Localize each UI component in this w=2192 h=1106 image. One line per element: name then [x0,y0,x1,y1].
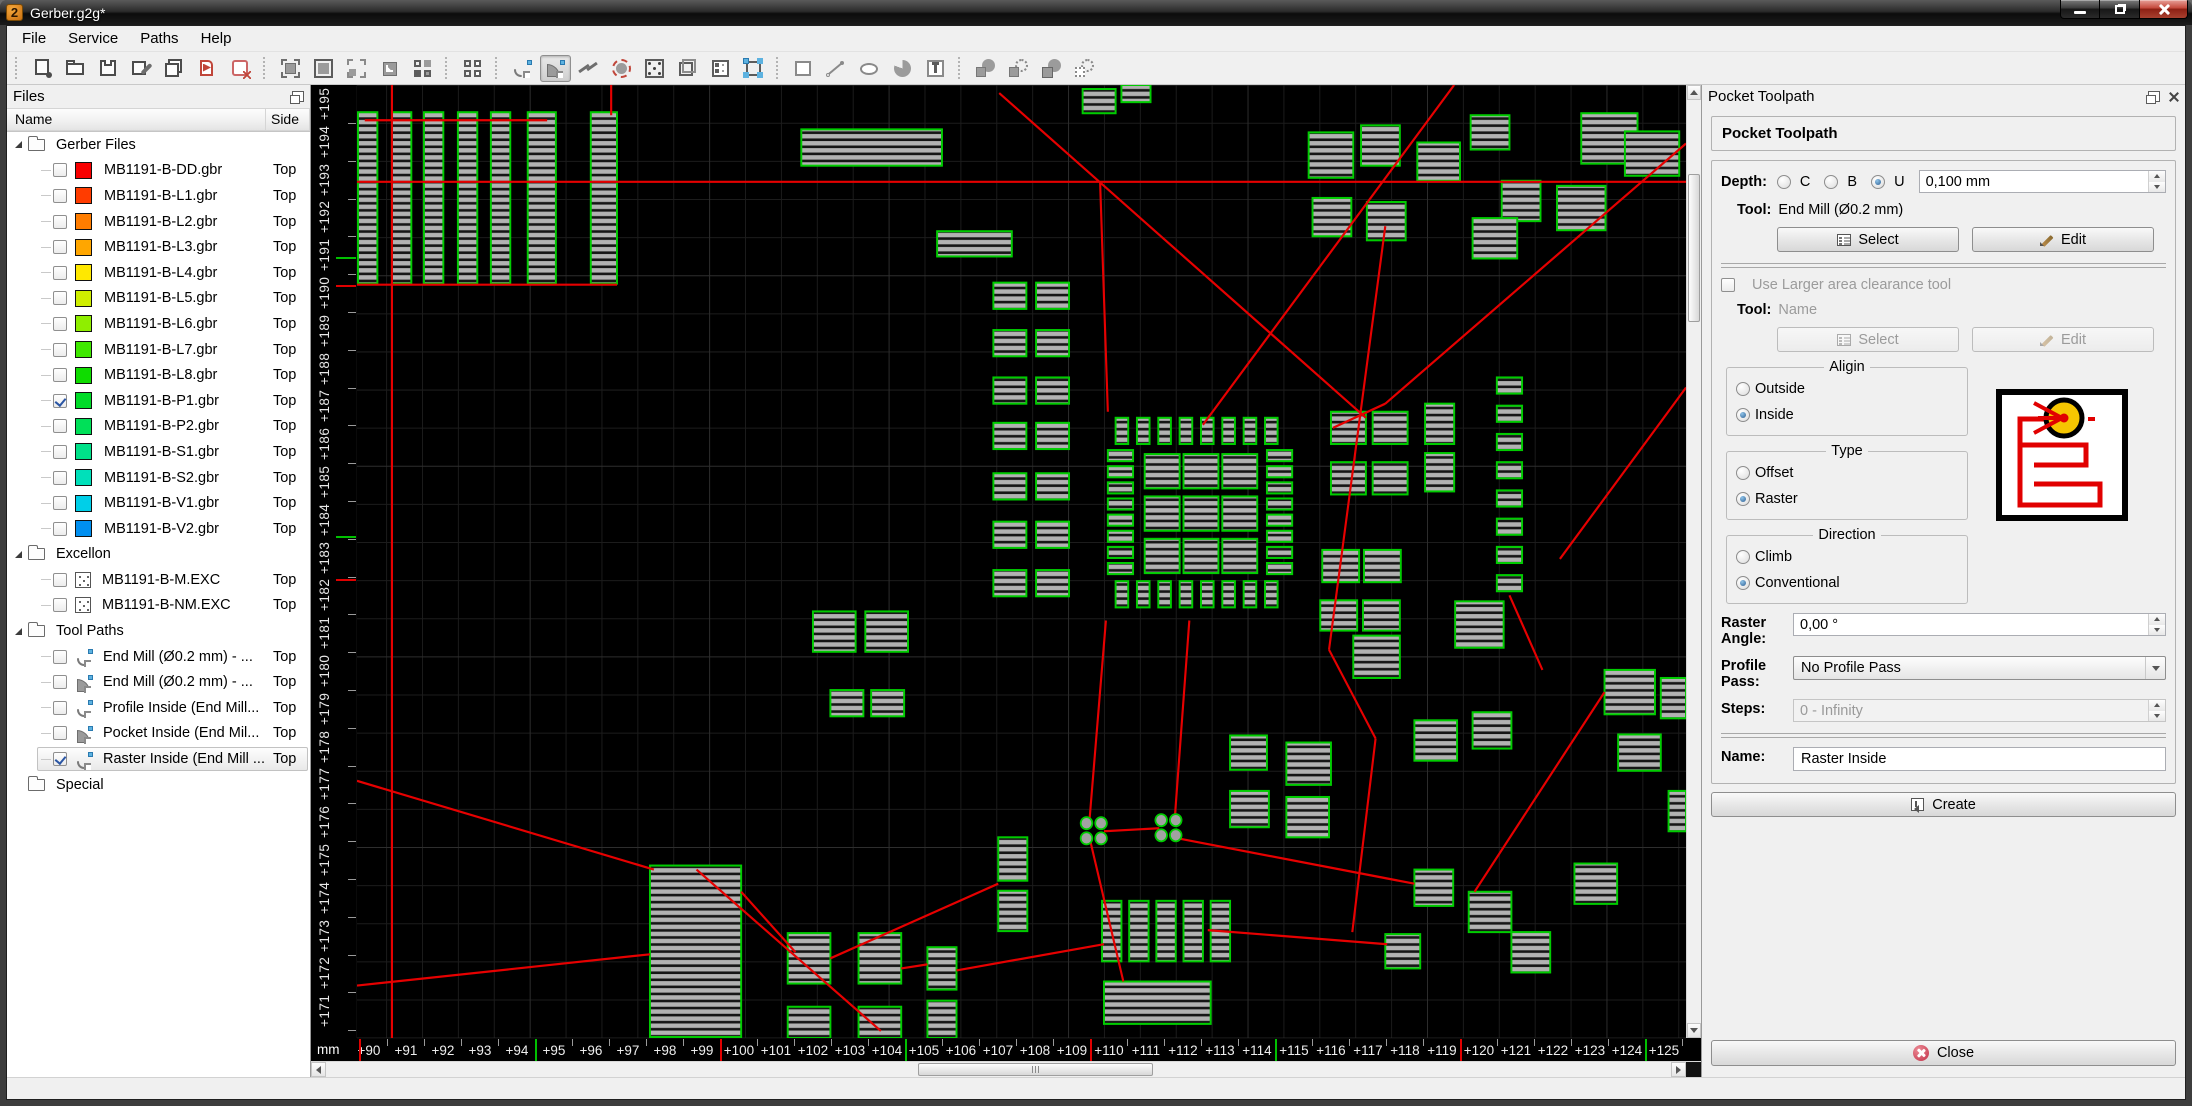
scroll-left-button[interactable] [311,1062,326,1077]
visibility-checkbox[interactable] [53,368,67,382]
layer-color-swatch[interactable] [75,290,92,307]
v-ruler-tick [348,236,356,237]
depth-radio-b[interactable] [1824,175,1838,189]
pcb-pad [1108,450,1133,461]
bool-subtract-button[interactable] [1003,55,1034,82]
expander-icon[interactable] [15,141,22,148]
pcb-pad [927,1001,956,1038]
type-raster-radio[interactable] [1736,492,1750,506]
depth-option-c[interactable]: C [1800,174,1810,190]
toolbar-grip[interactable] [776,57,783,79]
tree-file-row[interactable]: MB1191-B-V2.gbrTop [7,516,310,542]
bool-exclude-button[interactable] [1069,55,1100,82]
type-offset-radio[interactable] [1736,466,1750,480]
depth-radio-u[interactable] [1871,175,1885,189]
new-document-icon [32,58,53,79]
layer-color-swatch[interactable] [75,341,92,358]
minimize-button[interactable] [2060,0,2100,19]
tree-item-label[interactable]: MB1191-B-L1.gbr [102,186,267,206]
tree-file-row[interactable]: MB1191-B-L3.gbrTop [7,234,310,260]
pcb-pad [871,690,904,716]
tree-file-row[interactable]: MB1191-B-L8.gbrTop [7,362,310,388]
v-ruler-tick [348,539,356,540]
tree-item-label[interactable]: MB1191-B-P1.gbr [102,391,267,411]
tree-item-label[interactable]: MB1191-B-L4.gbr [102,263,267,283]
draw-line-button[interactable] [821,55,852,82]
tree-file-row[interactable]: MB1191-B-P1.gbrTop [7,388,310,414]
pocket-form: Depth: C B U 0,100 mm Tool: End Mill (Ø0… [1711,160,2176,784]
view-grid-button[interactable] [457,55,488,82]
outline-tool-button[interactable] [672,55,703,82]
restring-tool-button[interactable] [606,55,637,82]
pcb-pad [1661,678,1686,718]
horizontal-scroll-track[interactable] [326,1062,1671,1077]
pad-tool-icon [644,58,665,79]
visibility-checkbox[interactable] [53,343,67,357]
v-ruler-tick [348,199,356,200]
pcb-pad [1425,453,1454,491]
side-value: Top [267,597,310,613]
tree-file-row[interactable]: MB1191-B-DD.gbrTop [7,158,310,184]
folder-icon [28,779,45,791]
tree-file-row[interactable]: End Mill (Ø0.2 mm) - ...Top [7,644,310,670]
draw-ellipse-button[interactable] [854,55,885,82]
pcb-pad [1104,982,1211,1024]
pcb-pad [1156,901,1175,962]
tree-connector [41,503,51,504]
open-button[interactable] [60,55,91,82]
tree-file-row[interactable]: MB1191-B-L6.gbrTop [7,311,310,337]
toolbar-grip[interactable] [15,57,22,79]
tree-connector [41,221,51,222]
layer-color-swatch[interactable] [75,495,92,512]
pcb-pad [1497,490,1522,506]
v-ruler-label: +189 [317,313,335,349]
tree-folder-row[interactable]: Excellon [7,542,310,568]
layer-color-swatch[interactable] [75,213,92,230]
tree-connector [41,426,51,427]
pcb-pad [813,611,856,651]
tree-item-label[interactable]: MB1191-B-L2.gbr [102,212,267,232]
column-name[interactable]: Name [7,109,266,130]
files-panel-header: Files [7,85,310,108]
visibility-checkbox[interactable] [53,522,67,536]
layer-color-swatch[interactable] [75,392,92,409]
zoom-fit-button[interactable] [275,55,306,82]
pad-tool-button[interactable] [639,55,670,82]
edit-icon [2040,333,2054,347]
steps-spinner[interactable] [2148,700,2165,721]
direction-climb-radio[interactable] [1736,550,1750,564]
restore-icon [2115,5,2125,14]
outline-tool-icon [677,58,698,79]
scroll-down-button[interactable] [1687,1023,1701,1038]
draw-pie-button[interactable] [887,55,918,82]
close-panel-icon[interactable] [2168,91,2179,102]
separator [1721,733,2166,738]
tree-folder-label[interactable]: Excellon [54,544,310,564]
pcb-pad [392,112,411,283]
h-ruler-mark [1090,1039,1092,1061]
pcb-pad [1158,418,1171,444]
import-paths-button[interactable] [192,55,223,82]
pcb-pad [1625,131,1679,175]
tree-file-row[interactable]: MB1191-B-L1.gbrTop [7,183,310,209]
h-ruler-label: +113 [1200,1043,1240,1058]
tree-item-label[interactable]: MB1191-B-V2.gbr [102,519,267,539]
menu-paths[interactable]: Paths [129,27,189,50]
close-file-button[interactable] [225,55,256,82]
tree-connector [41,579,51,580]
visibility-checkbox[interactable] [53,573,67,587]
name-input[interactable]: Raster Inside [1793,747,2166,771]
v-ruler-label: +171 [317,993,335,1029]
visibility-checkbox[interactable] [53,445,67,459]
pcb-pad [1267,563,1292,574]
v-ruler-tick [348,652,356,653]
direction-group-title: Direction [1813,527,1880,543]
menu-file[interactable]: File [11,27,57,50]
via-pad [1081,817,1093,829]
pcb-pad [1129,901,1148,962]
title-bar[interactable]: 2 Gerber.g2g* [0,0,2192,25]
toolpath-icon [75,673,94,692]
float-panel-icon[interactable] [292,91,304,102]
save-button[interactable] [93,55,124,82]
menu-help[interactable]: Help [190,27,243,50]
edit-icon [2040,233,2054,247]
visibility-checkbox[interactable] [53,163,67,177]
restore-button[interactable] [2100,0,2140,19]
pcb-pad [1497,519,1522,535]
layer-color-swatch[interactable] [75,367,92,384]
v-ruler-tick [348,350,356,351]
clearance-select-button[interactable]: Select [1777,327,1959,352]
h-ruler-mark [905,1039,907,1061]
tree-folder-label[interactable]: Gerber Files [54,135,310,155]
pocket-panel-header: Pocket Toolpath [1702,85,2185,108]
create-button[interactable]: Create [1711,792,2176,817]
pcb-pad [1669,791,1686,831]
layer-color-swatch[interactable] [75,187,92,204]
raster-angle-field[interactable]: 0,00 ° [1793,613,2166,636]
pcb-pad [1222,539,1257,573]
tree-item-label[interactable]: MB1191-B-L5.gbr [102,288,267,308]
visibility-checkbox[interactable] [53,240,67,254]
tree-item-label[interactable]: Pocket Inside (End Mil... [101,723,267,743]
arc-tool-icon [512,58,533,79]
tree-folder-label[interactable]: Special [54,775,310,795]
tree-file-row[interactable]: MB1191-B-L2.gbrTop [7,209,310,235]
v-ruler-label: +188 [317,351,335,387]
align-group: Aligin Outside Inside [1726,359,1968,436]
tree-file-row[interactable]: MB1191-B-M.EXCTop [7,567,310,593]
menu-service[interactable]: Service [57,27,129,50]
profile-pass-dropdown[interactable]: No Profile Pass [1793,656,2166,680]
visibility-checkbox[interactable] [53,726,67,740]
tree-file-row[interactable]: MB1191-B-L4.gbrTop [7,260,310,286]
side-value: Top [267,265,310,281]
app-window: 2 Gerber.g2g* FileServicePathsHelp Files… [0,0,2192,1106]
tree-file-row[interactable]: MB1191-B-L5.gbrTop [7,286,310,312]
pcb-pad [1320,600,1357,630]
save-icon [98,58,119,79]
tree-file-row[interactable]: MB1191-B-P2.gbrTop [7,414,310,440]
tree-connector [41,707,51,708]
visibility-checkbox[interactable] [53,496,67,510]
layer-color-swatch[interactable] [75,264,92,281]
type-offset-label[interactable]: Offset [1755,465,1793,481]
depth-option-u[interactable]: U [1894,174,1904,190]
layer-color-swatch[interactable] [75,443,92,460]
tree-connector [41,375,51,376]
toolbar-grip[interactable] [958,57,965,79]
pcb-pad [1180,581,1193,607]
clearance-label[interactable]: Use Larger area clearance tool [1752,277,1951,293]
visibility-checkbox[interactable] [53,266,67,280]
v-ruler-mark [336,579,356,581]
drill-file-icon [75,572,91,588]
h-ruler-label: +122 [1533,1043,1573,1058]
type-raster-label[interactable]: Raster [1755,491,1798,507]
tree-item-label[interactable]: MB1191-B-DD.gbr [102,160,267,180]
pcb-pad [1222,581,1235,607]
depth-option-b[interactable]: B [1847,174,1857,190]
tree-folder-row[interactable]: Special [7,772,310,798]
v-ruler-tick [348,463,356,464]
visibility-checkbox[interactable] [53,752,67,766]
v-ruler-tick [348,955,356,956]
pcb-pad [1244,418,1257,444]
toolbar-grip[interactable] [445,57,452,79]
depth-value-field[interactable]: 0,100 mm [1919,170,2166,193]
horizontal-scrollbar[interactable] [311,1061,1701,1077]
pcb-pad [1618,734,1661,770]
column-side[interactable]: Side [266,109,309,130]
visibility-checkbox[interactable] [53,291,67,305]
draw-rectangle-icon [793,58,814,79]
zoom-in-selection-button[interactable] [374,55,405,82]
tree-item-label[interactable]: Profile Inside (End Mill... [101,698,267,718]
pcb-pad [1265,418,1278,444]
visibility-checkbox[interactable] [53,394,67,408]
direction-conventional-label[interactable]: Conventional [1755,575,1840,591]
tree-file-row[interactable]: MB1191-B-S1.gbrTop [7,439,310,465]
pcb-pad [1497,434,1522,450]
v-ruler-tick [348,879,356,880]
direction-conventional-radio[interactable] [1736,576,1750,590]
pcb-pad [1108,563,1133,574]
arc-filled-tool-button[interactable] [540,55,571,82]
tree-folder-label[interactable]: Tool Paths [54,621,310,641]
polyline-tool-button[interactable] [573,55,604,82]
tree-folder-row[interactable]: Tool Paths [7,618,310,644]
align-outside-radio[interactable] [1736,382,1750,396]
pcb-pad [1574,864,1617,904]
layer-color-swatch[interactable] [75,162,92,179]
pcb-pad [424,112,443,283]
direction-climb-label[interactable]: Climb [1755,549,1792,565]
new-document-button[interactable] [27,55,58,82]
pcb-pad [998,891,1027,931]
layer-color-swatch[interactable] [75,418,92,435]
tree-item-label[interactable]: MB1191-B-NM.EXC [100,595,267,615]
draw-text-button[interactable] [920,55,951,82]
layer-color-swatch[interactable] [75,239,92,256]
close-icon [2158,3,2170,15]
tool-select-button[interactable]: Select [1777,227,1959,252]
draw-rectangle-button[interactable] [788,55,819,82]
v-ruler-label: +184 [317,502,335,538]
align-inside-label[interactable]: Inside [1755,407,1794,423]
pcb-pad [1036,423,1069,449]
vertical-scroll-track[interactable] [1687,100,1701,1023]
visibility-checkbox[interactable] [53,701,67,715]
depth-spinner[interactable] [2148,171,2165,192]
tree-file-row[interactable]: End Mill (Ø0.2 mm) - ...Top [7,669,310,695]
via-pad [1170,814,1182,826]
visibility-checkbox[interactable] [53,650,67,664]
vertical-scrollbar[interactable] [1686,85,1701,1038]
pcb-pad [1036,570,1069,596]
transform-tool-button[interactable] [738,55,769,82]
scroll-right-button[interactable] [1671,1062,1686,1077]
layer-color-swatch[interactable] [75,520,92,537]
h-ruler-mark [535,1039,537,1061]
tree-item-label[interactable]: MB1191-B-S2.gbr [102,468,267,488]
h-ruler-label: +115 [1274,1043,1314,1058]
tree-file-row[interactable]: MB1191-B-L7.gbrTop [7,337,310,363]
align-outside-label[interactable]: Outside [1755,381,1805,397]
tree-connector [41,298,51,299]
clearance-edit-button[interactable]: Edit [1972,327,2154,352]
tree-file-row[interactable]: MB1191-B-NM.EXCTop [7,593,310,619]
pcb-pad [1183,901,1202,962]
pcb-pad [993,522,1026,548]
visibility-checkbox[interactable] [53,675,67,689]
tree-item-label[interactable]: MB1191-B-S1.gbr [102,442,267,462]
scrollbar-corner [1686,1062,1701,1077]
tree-connector [41,733,51,734]
via-pad [1095,817,1107,829]
close-button[interactable] [2140,0,2188,19]
h-ruler-label: +100 [719,1043,759,1058]
toolbar-grip[interactable] [495,57,502,79]
h-ruler-label: +91 [386,1043,426,1058]
visibility-checkbox[interactable] [53,215,67,229]
edit-label: Edit [2061,232,2086,248]
align-inside-radio[interactable] [1736,408,1750,422]
pcb-pad [1364,550,1401,582]
visibility-checkbox[interactable] [53,471,67,485]
name-value: Raster Inside [1801,751,1886,767]
visibility-checkbox[interactable] [53,419,67,433]
pcb-pad [1158,581,1171,607]
pcb-pad [1145,539,1180,573]
visibility-checkbox[interactable] [53,189,67,203]
pcb-pad [1473,218,1518,258]
arc-tool-button[interactable] [507,55,538,82]
tree-item-label[interactable]: MB1191-B-L3.gbr [102,237,267,257]
tree-connector [41,323,51,324]
steps-field[interactable]: 0 - Infinity [1793,699,2166,722]
tree-item-label[interactable]: Raster Inside (End Mill ... [101,749,267,769]
h-ruler-label: +102 [793,1043,833,1058]
tree-item-label[interactable]: End Mill (Ø0.2 mm) - ... [101,647,267,667]
side-value: Top [267,418,310,434]
zoom-selection-button[interactable] [308,55,339,82]
save-all-button[interactable] [159,55,190,82]
tree-connector [41,247,51,248]
clearance-checkbox[interactable] [1721,278,1735,292]
tree-item-label[interactable]: MB1191-B-M.EXC [100,570,267,590]
layer-color-swatch[interactable] [75,315,92,332]
expander-icon[interactable] [15,551,22,558]
steps-value: 0 - Infinity [1800,703,1863,719]
visibility-checkbox[interactable] [53,317,67,331]
close-toolpath-button[interactable]: Close [1711,1040,2176,1066]
tree-connector [41,170,51,171]
expander-icon[interactable] [15,628,22,635]
h-ruler-mark [1275,1039,1277,1061]
pcb-pad [1116,418,1129,444]
tree-file-row[interactable]: Pocket Inside (End Mil...Top [7,721,310,747]
vertical-scroll-thumb[interactable] [1688,174,1700,322]
save-all-icon [164,58,185,79]
tree-item-label[interactable]: End Mill (Ø0.2 mm) - ... [101,672,267,692]
tree-file-row[interactable]: Profile Inside (End Mill...Top [7,695,310,721]
tree-item-label[interactable]: MB1191-B-L6.gbr [102,314,267,334]
arrow-right-icon [1676,1066,1681,1074]
tree-item-label[interactable]: MB1191-B-L8.gbr [102,365,267,385]
raster-angle-spinner[interactable] [2148,614,2165,635]
bool-intersect-button[interactable] [1036,55,1067,82]
view-pads-button[interactable] [407,55,438,82]
draw-text-icon [925,58,946,79]
h-ruler-label: +104 [867,1043,907,1058]
save-as-button[interactable] [126,55,157,82]
h-ruler-label: +101 [756,1043,796,1058]
float-panel-icon[interactable] [2148,91,2160,102]
visibility-checkbox[interactable] [53,598,67,612]
tree-connector [41,605,51,606]
horizontal-scroll-thumb[interactable] [918,1063,1153,1076]
tree-item-label[interactable]: MB1191-B-L7.gbr [102,340,267,360]
tree-item-label[interactable]: MB1191-B-V1.gbr [102,493,267,513]
pcb-pad [1373,462,1408,494]
layer-color-swatch[interactable] [75,469,92,486]
tree-item-label[interactable]: MB1191-B-P2.gbr [102,416,267,436]
toolbar-grip[interactable] [263,57,270,79]
bool-union-button[interactable] [970,55,1001,82]
pcb-pad [1267,466,1292,477]
pcb-pad [1108,466,1133,477]
tree-folder-row[interactable]: Gerber Files [7,132,310,158]
files-column-header[interactable]: Name Side [7,108,310,131]
v-ruler-label: +187 [317,388,335,424]
zoom-out-selection-button[interactable] [341,55,372,82]
scroll-up-button[interactable] [1687,85,1701,100]
pcb-canvas[interactable] [357,85,1686,1038]
properties-form-button[interactable] [705,55,736,82]
tree-file-row[interactable]: MB1191-B-S2.gbrTop [7,465,310,491]
side-value: Top [267,572,310,588]
tool-edit-button[interactable]: Edit [1972,227,2154,252]
tree-file-row[interactable]: Raster Inside (End Mill ...Top [7,746,310,772]
h-ruler-label: +120 [1459,1043,1499,1058]
depth-radio-c[interactable] [1777,175,1791,189]
tree-file-row[interactable]: MB1191-B-V1.gbrTop [7,490,310,516]
